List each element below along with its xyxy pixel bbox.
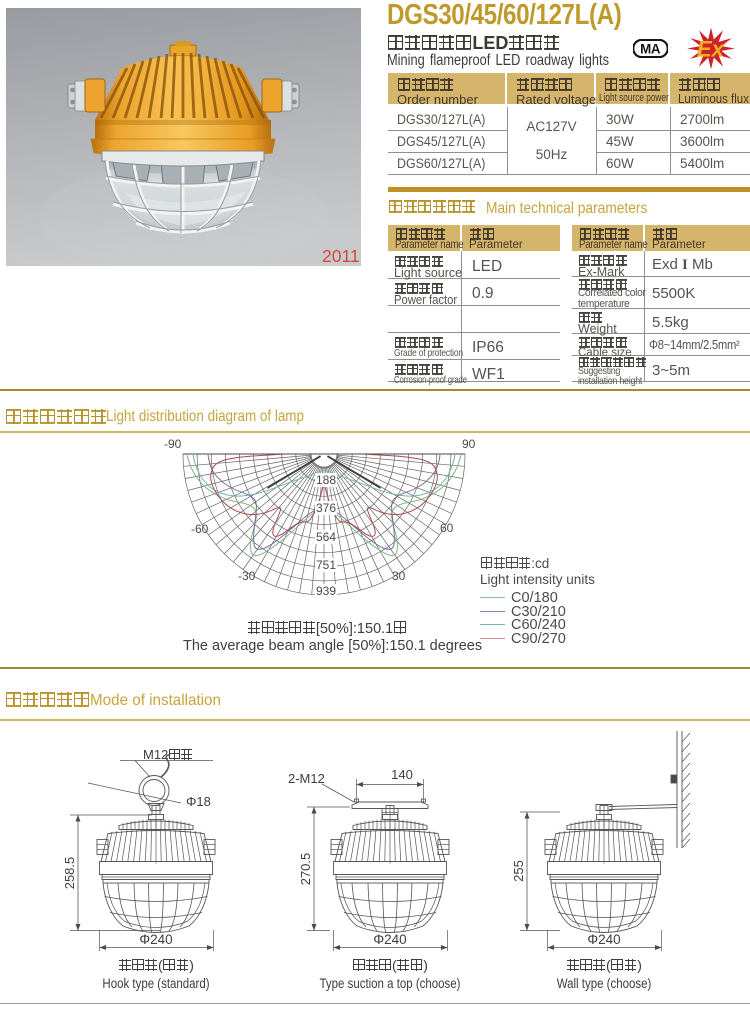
- svg-text:258.5: 258.5: [62, 857, 77, 890]
- svg-text:Φ18: Φ18: [186, 794, 211, 809]
- svg-text:140: 140: [391, 767, 413, 782]
- svg-text:Φ240: Φ240: [587, 932, 620, 947]
- svg-text:Ex: Ex: [697, 37, 725, 62]
- svg-text:2011: 2011: [322, 246, 360, 266]
- svg-text:Φ240: Φ240: [139, 932, 172, 947]
- svg-text:270.5: 270.5: [298, 853, 313, 886]
- svg-text:2-M12: 2-M12: [288, 771, 325, 786]
- svg-text:MA: MA: [640, 42, 661, 57]
- svg-text:Φ240: Φ240: [373, 932, 406, 947]
- svg-text:255: 255: [511, 860, 526, 882]
